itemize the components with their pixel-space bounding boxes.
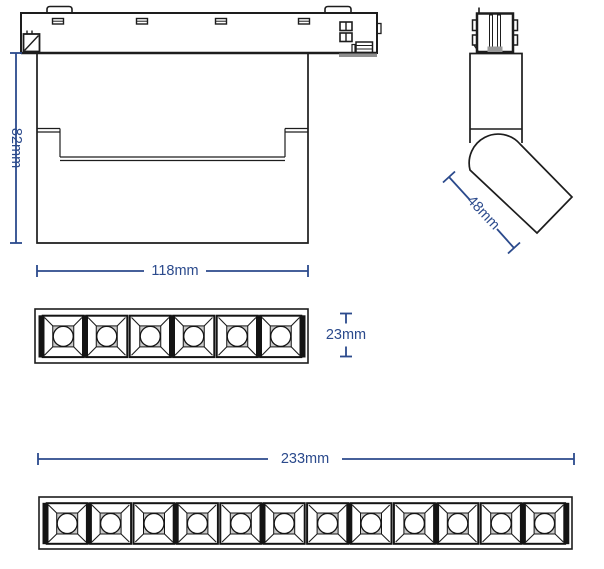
- lamp-body-side: [470, 54, 522, 144]
- track-adapter-bar: [21, 7, 381, 58]
- led-cell: [86, 316, 127, 357]
- adapter-hooks: [473, 20, 518, 51]
- led-cell: [220, 503, 261, 544]
- led-cell: [134, 503, 175, 544]
- lamp-body-front: [37, 53, 308, 243]
- cell-divider-thick: [520, 503, 526, 544]
- cell-divider-thick: [260, 503, 266, 544]
- side-view: 48mm: [443, 8, 572, 254]
- body-bracket-lines: [37, 129, 308, 161]
- module-height-label: 23mm: [326, 327, 366, 343]
- drawing-canvas: 82mm 118mm: [0, 0, 604, 569]
- adapter-slots: [53, 19, 310, 25]
- dimension-head-width: 48mm: [443, 172, 520, 254]
- adapter-end-view: [473, 8, 518, 53]
- led-cell: [437, 503, 478, 544]
- led-cell: [524, 503, 565, 544]
- led-cell: [260, 316, 301, 357]
- led-cell: [481, 503, 522, 544]
- led-cell: [351, 503, 392, 544]
- led-cells-6: [39, 315, 306, 357]
- cell-divider-thick: [39, 315, 45, 357]
- front-view: 82mm 118mm: [8, 7, 381, 280]
- led-cell: [90, 503, 131, 544]
- cell-divider-thick: [300, 315, 306, 357]
- led-module-12: 233mm: [38, 451, 574, 549]
- slot-gray-fill: [488, 47, 503, 53]
- front-height-label: 82mm: [8, 128, 24, 168]
- led-cell: [264, 503, 305, 544]
- cell-divider-thick: [82, 315, 88, 357]
- cell-divider-thick: [563, 503, 569, 544]
- led-cells-12: [43, 503, 570, 544]
- dip-switch-bottom: [340, 33, 352, 42]
- cell-divider-thick: [169, 315, 175, 357]
- cell-divider-thick: [173, 503, 179, 544]
- led-cell: [307, 503, 348, 544]
- led-cell: [47, 503, 88, 544]
- head-width-label: 48mm: [463, 193, 502, 233]
- led-cell: [217, 316, 258, 357]
- technical-drawing: 82mm 118mm: [0, 0, 604, 569]
- cell-divider-thick: [433, 503, 439, 544]
- side-tab: [377, 24, 381, 34]
- led-cell: [177, 503, 218, 544]
- led-module-6: 23mm: [35, 309, 366, 363]
- cell-divider-thick: [256, 315, 262, 357]
- dimension-front-width: 118mm: [37, 263, 308, 279]
- led-cell: [130, 316, 171, 357]
- led-cell: [394, 503, 435, 544]
- vent-block: [356, 42, 373, 53]
- led-cell: [173, 316, 214, 357]
- cell-divider-thick: [86, 503, 92, 544]
- led-cell: [43, 316, 84, 357]
- mount-clip-left: [24, 31, 40, 52]
- dimension-module-width: 233mm: [38, 451, 574, 467]
- dimension-front-height: 82mm: [8, 53, 24, 243]
- cell-divider-thick: [43, 503, 49, 544]
- front-width-label: 118mm: [151, 263, 198, 279]
- module-width-label: 233mm: [281, 451, 329, 467]
- shadow-strip: [339, 54, 377, 58]
- dip-switch-top: [340, 22, 352, 31]
- cell-divider-thick: [346, 503, 352, 544]
- dimension-module-height: 23mm: [326, 314, 366, 357]
